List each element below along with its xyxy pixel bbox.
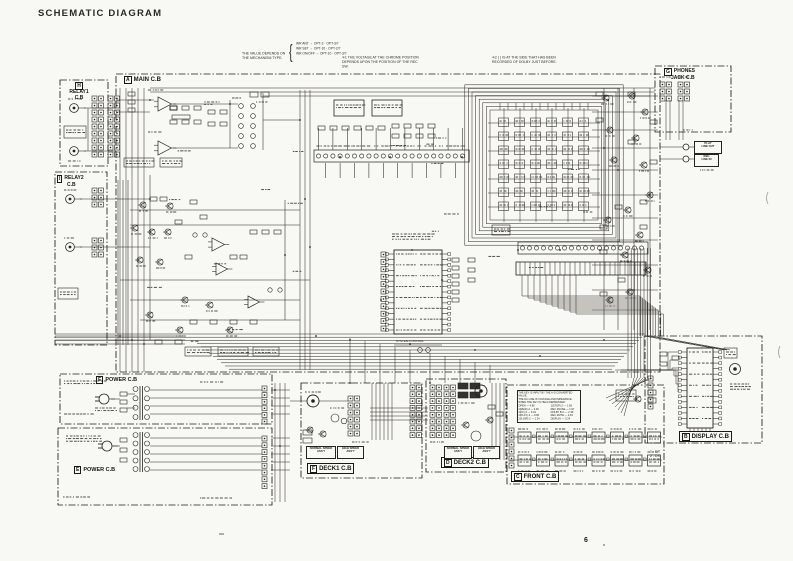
rec-line-in-label: REC LINE IN	[694, 154, 719, 167]
outline-power1	[60, 374, 272, 424]
display-note: 1 - CX 2 - DX	[650, 450, 674, 468]
note-3: ✳1 THE VOLTAGE AT THE CHROME POSITION DE…	[342, 56, 422, 82]
block-label-deck1: F DECK1 C.B	[307, 463, 354, 474]
front-note-table-row: 1(S.DIR)·2 — 1.24	[518, 417, 548, 420]
note-2-row: WR ANT → OPT-2 · OPT-3/7	[296, 42, 366, 46]
note-2-brace: {	[289, 42, 292, 64]
block-label-main: A MAIN C.B	[124, 76, 161, 84]
front-note-box: THE KEY IS INPUT BY THE A-D CONVERTED VA…	[517, 390, 581, 423]
schematic-canvas	[0, 0, 793, 561]
note-2-row: WR SET → OPT-10 · OPT-2/7	[296, 47, 366, 51]
schematic-page: SCHEMATIC DIAGRAM 6 A MAIN C.B H RELAY1 …	[0, 0, 793, 561]
deck1-high-speed-label: HIGH SPEED ASS'Y	[337, 446, 364, 459]
block-text-main: MAIN C.B	[134, 77, 161, 83]
play-line-out-label: PLAY LINE OUT	[694, 141, 722, 154]
deck2-normal-speed-label: NORMAL SPEED ASS'Y	[444, 446, 472, 459]
deck1-normal-speed-label: NORMAL SPEED ASS'Y	[306, 446, 336, 459]
page-number: 6	[584, 537, 588, 544]
block-label-front: C FRONT C.B	[511, 471, 559, 482]
system-control-label: SYSTEM CONTROL	[396, 340, 442, 348]
outline-relay2	[55, 172, 107, 345]
block-label-relay2: I RELAY2 C.B	[57, 175, 91, 189]
schematic-linework	[55, 66, 780, 545]
note-1: THE VALUE DEPENDS ON THE MECHANISM TYPE.	[242, 52, 288, 70]
page-title: SCHEMATIC DIAGRAM	[38, 8, 162, 19]
front-note-table-row: DISPLAY — 3.24	[551, 417, 581, 420]
block-label-display: B DISPLAY C.B	[679, 431, 732, 442]
block-label-phones: G PHONES JACK C.B	[664, 68, 704, 82]
block-tag-main: A	[124, 76, 132, 84]
note-4: ✳2 ( ) IS AT THE SIDE THAT HAS BEEN RECO…	[492, 56, 566, 74]
block-label-power1: E POWER C.B	[96, 376, 137, 384]
deck2-high-speed-label: HIGH SPEED ASS'Y	[473, 446, 500, 459]
note-2: { WR ANT → OPT-2 · OPT-3/7WR SET → OPT-1…	[289, 42, 366, 57]
block-label-power2: E POWER C.B	[74, 466, 115, 474]
block-label-relay1: H RELAY1 C.B	[62, 82, 96, 101]
